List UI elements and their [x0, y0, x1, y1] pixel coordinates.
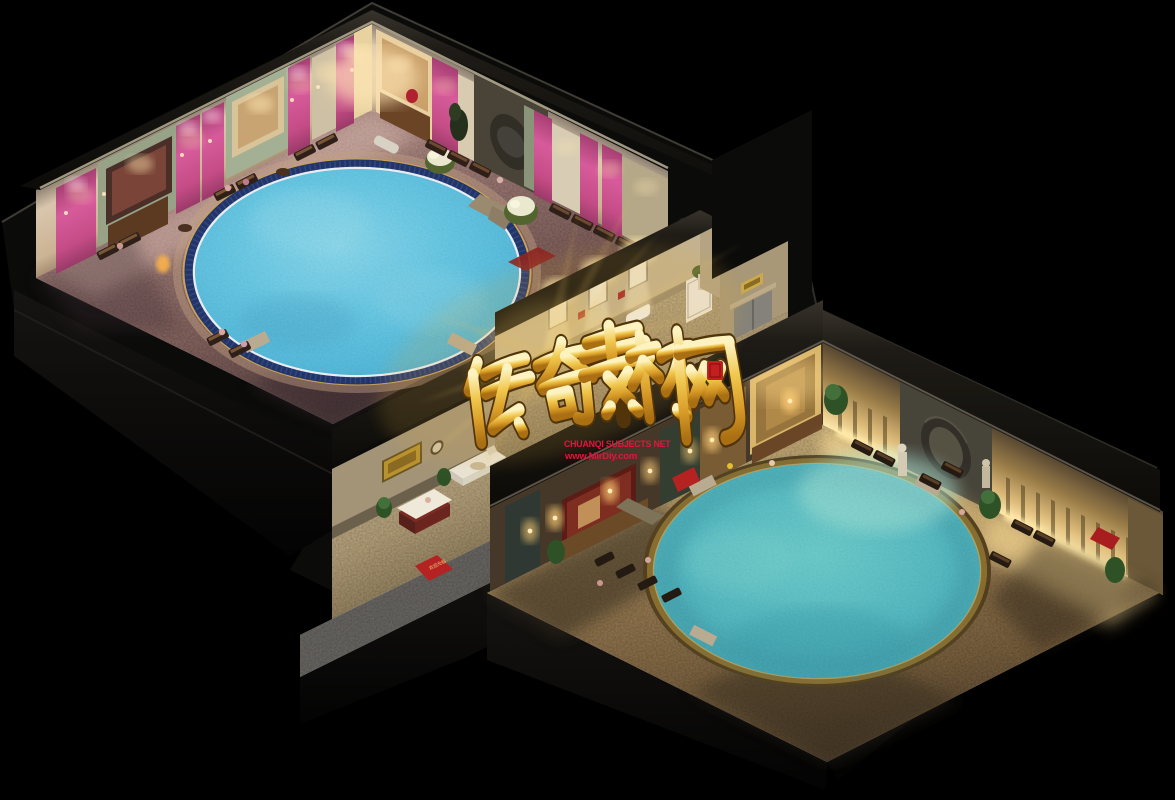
- svg-text:www.MirDiy.com: www.MirDiy.com: [564, 451, 637, 462]
- svg-text:CHUANQI SUBJECTS NET: CHUANQI SUBJECTS NET: [564, 439, 671, 449]
